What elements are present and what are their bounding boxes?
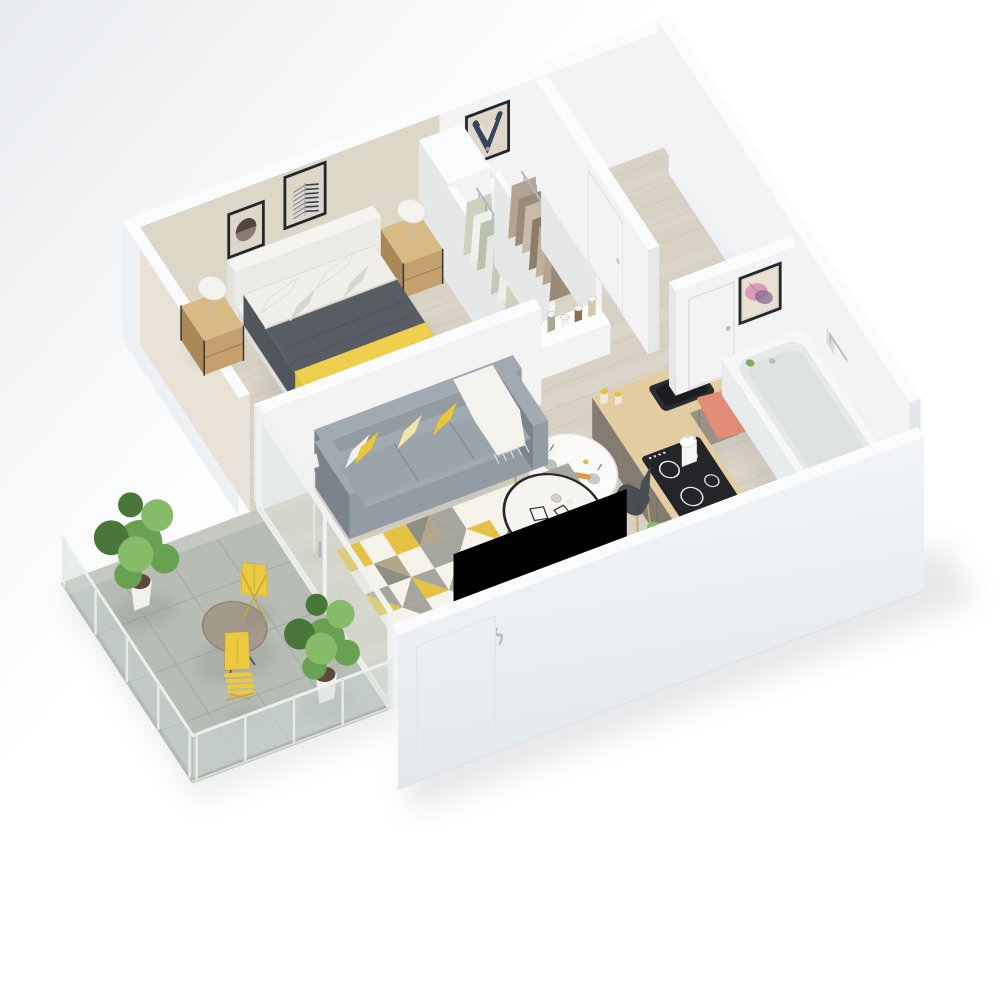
plant-foliage: [141, 499, 173, 531]
plant-foliage: [118, 536, 154, 572]
floor-plan-svg: [0, 0, 1000, 1000]
plant-foliage: [305, 633, 337, 665]
sofa-arm-right-front: [533, 421, 548, 471]
plant-foliage: [150, 544, 179, 573]
apartment-render: [0, 0, 1000, 1000]
plant-foliage: [306, 594, 328, 616]
plant-foliage: [334, 640, 360, 666]
hall-wall-end: [648, 246, 659, 354]
plant-foliage: [118, 492, 143, 517]
bathroom-wall-end: [669, 282, 676, 396]
plant-foliage: [326, 600, 355, 629]
